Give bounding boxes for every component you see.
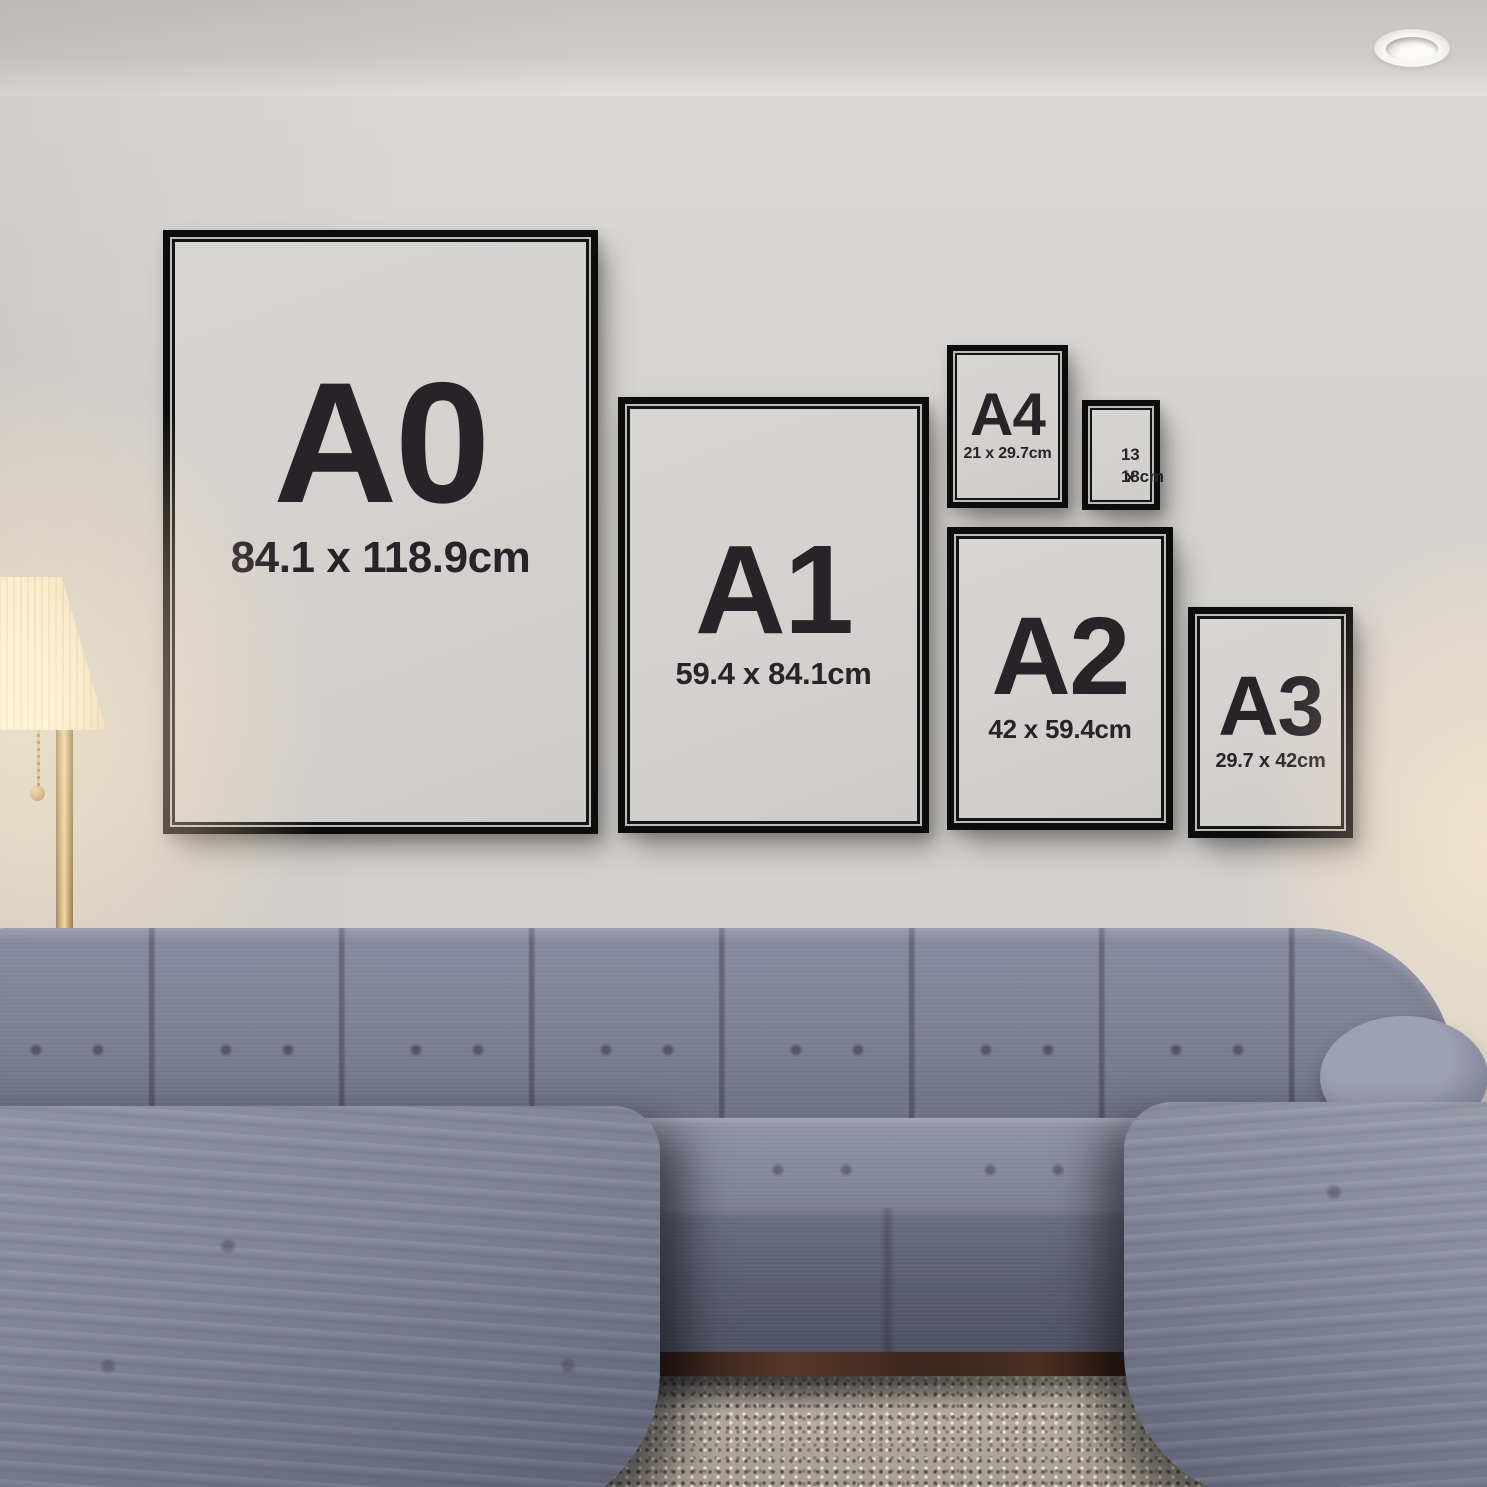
sofa-front-panel (642, 1208, 1148, 1370)
sofa-right-chaise (1124, 1102, 1487, 1487)
frame-a4-liner: A4 21 x 29.7cm (953, 351, 1062, 502)
frame-a2-label: A2 (991, 612, 1128, 702)
sofa-wood-base (648, 1352, 1150, 1376)
frame-a4-size: 21 x 29.7cm (963, 445, 1051, 463)
frame-a3-size: 29.7 x 42cm (1215, 750, 1325, 773)
frame-a2: A2 42 x 59.4cm (947, 527, 1173, 830)
frame-a1-label: A1 (695, 538, 852, 641)
frame-a0-mat: A0 84.1 x 118.9cm (172, 239, 589, 825)
frame-13x18: 13 x 18cm (1082, 400, 1160, 510)
floor-lamp-pull-chain (37, 730, 40, 788)
floor-lamp-pole (56, 722, 73, 962)
frame-a2-liner: A2 42 x 59.4cm (954, 534, 1166, 823)
recessed-downlight (1374, 29, 1450, 67)
ceiling (0, 0, 1487, 104)
frame-a3-label: A3 (1218, 672, 1323, 741)
frame-a2-size: 42 x 59.4cm (988, 714, 1131, 745)
frame-a1-size: 59.4 x 84.1cm (676, 656, 872, 692)
frame-13x18-mat: 13 x 18cm (1090, 408, 1152, 502)
living-room-scene: A0 84.1 x 118.9cm A1 59.4 x 84.1cm A4 21… (0, 0, 1487, 1487)
frame-a3: A3 29.7 x 42cm (1188, 607, 1353, 838)
frame-a1-liner: A1 59.4 x 84.1cm (625, 404, 922, 826)
frame-a3-mat: A3 29.7 x 42cm (1197, 616, 1344, 829)
frame-a0: A0 84.1 x 118.9cm (163, 230, 598, 834)
frame-a3-liner: A3 29.7 x 42cm (1195, 614, 1346, 831)
frame-a0-liner: A0 84.1 x 118.9cm (170, 237, 591, 827)
frame-a0-label: A0 (273, 373, 488, 514)
frame-a2-mat: A2 42 x 59.4cm (956, 536, 1164, 821)
frame-13x18-liner: 13 x 18cm (1088, 406, 1154, 504)
frame-13x18-size-line2: 18cm (1121, 466, 1164, 487)
frame-a1: A1 59.4 x 84.1cm (618, 397, 929, 833)
frame-a4-mat: A4 21 x 29.7cm (955, 353, 1060, 500)
floor-lamp-chain-ball (30, 786, 45, 801)
frame-a1-mat: A1 59.4 x 84.1cm (627, 406, 920, 824)
sofa-left-chaise (0, 1106, 660, 1487)
frame-a4-label: A4 (970, 390, 1045, 439)
frame-a4: A4 21 x 29.7cm (947, 345, 1068, 508)
frame-a0-size: 84.1 x 118.9cm (231, 533, 531, 583)
